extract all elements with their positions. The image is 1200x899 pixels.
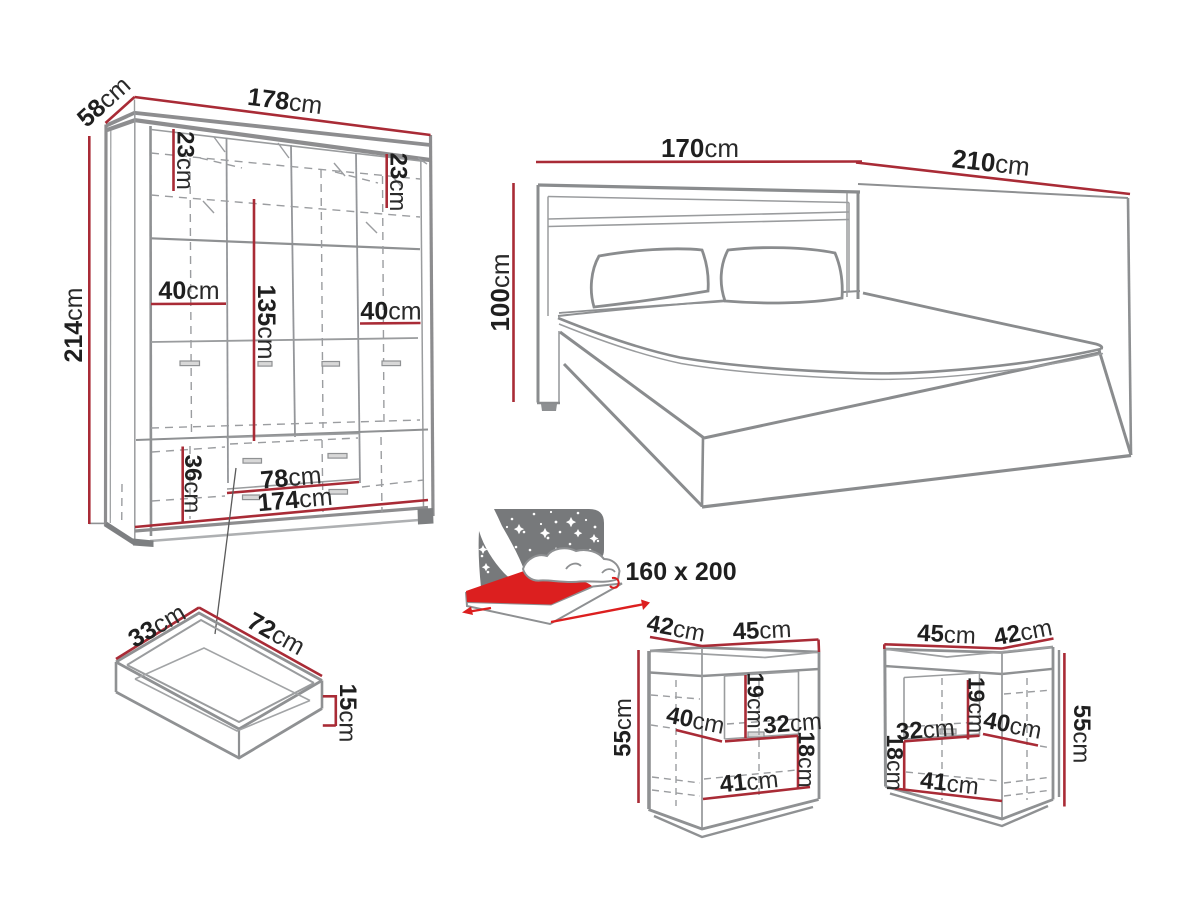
svg-text:55cm: 55cm	[1068, 705, 1095, 764]
svg-text:18cm: 18cm	[794, 731, 820, 787]
svg-text:36cm: 36cm	[179, 455, 206, 514]
svg-text:100cm: 100cm	[485, 253, 515, 331]
svg-text:18cm: 18cm	[882, 734, 908, 790]
svg-text:135cm: 135cm	[252, 284, 280, 359]
svg-text:45cm: 45cm	[917, 620, 977, 650]
svg-text:40cm: 40cm	[158, 277, 219, 305]
svg-text:23cm: 23cm	[385, 153, 412, 212]
svg-text:55cm: 55cm	[610, 698, 637, 757]
svg-text:214cm: 214cm	[60, 287, 88, 362]
svg-text:170cm: 170cm	[661, 133, 739, 163]
svg-text:23cm: 23cm	[172, 131, 199, 190]
svg-text:160 x 200: 160 x 200	[625, 558, 736, 586]
svg-text:40cm: 40cm	[360, 298, 421, 326]
svg-text:15cm: 15cm	[334, 684, 361, 743]
svg-text:45cm: 45cm	[732, 615, 792, 645]
